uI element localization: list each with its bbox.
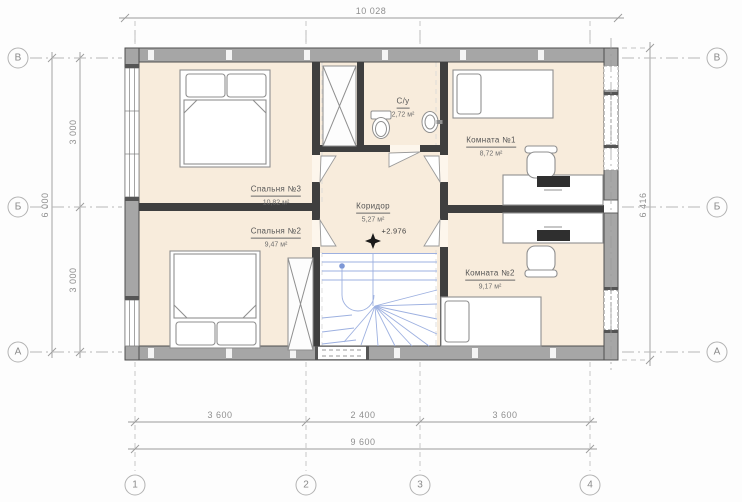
room-area: 8,72 м²: [466, 151, 516, 160]
room-name: С/у: [397, 97, 410, 109]
room-area: 9,17 м²: [465, 284, 515, 293]
dim-left-segment-2: 3 000: [68, 267, 78, 292]
axis-circle-a-left: А: [8, 342, 29, 363]
bed-room2: [441, 297, 541, 346]
axis-circle-b-right: Б: [707, 197, 728, 218]
axis-circle-v-right: В: [707, 48, 728, 69]
window-bottom: [318, 347, 366, 359]
dim-top-overall: 10 028: [356, 6, 387, 16]
axis-circle-2: 2: [296, 475, 317, 496]
room-name: Комната №1: [466, 136, 516, 148]
axis-circle-a-right: А: [707, 342, 728, 363]
room-name: Спальня №3: [251, 185, 301, 197]
room-name: Коридор: [356, 202, 390, 214]
axis-circle-1: 1: [125, 475, 146, 496]
wardrobe-hall: [323, 66, 356, 146]
room-area: 2,72 м²: [392, 112, 415, 121]
axis-circle-3: 3: [410, 475, 431, 496]
dim-bottom-segment-3: 3 600: [492, 410, 517, 420]
bed-bedroom2: [170, 251, 260, 348]
dim-left-segment-1: 3 000: [68, 119, 78, 144]
room-label-room1: Комната №1 8,72 м²: [466, 129, 516, 160]
room-area: 10,82 м²: [251, 200, 301, 209]
toilet: [371, 111, 391, 139]
room-name: Комната №2: [465, 269, 515, 281]
axis-circle-4: 4: [580, 475, 601, 496]
room-label-bedroom3: Спальня №3 10,82 м²: [251, 178, 301, 209]
room-label-bedroom2: Спальня №2 9,47 м²: [251, 220, 301, 251]
axis-circle-v-left: В: [8, 48, 29, 69]
floor-plan-drawing: 10 028 6 000 3 000 3 000 6 416 3 600 2 4…: [0, 0, 742, 502]
bed-room1: [453, 70, 553, 118]
room-label-corridor: Коридор 5,27 м²: [356, 195, 390, 226]
room-label-room2: Комната №2 9,17 м²: [465, 262, 515, 293]
floor-plan-canvas: [0, 0, 742, 502]
dim-bottom-overall: 9 600: [350, 437, 375, 447]
room-area: 9,47 м²: [251, 242, 301, 251]
elevation-mark: +2.976: [382, 227, 407, 236]
dim-left-overall: 6 000: [40, 192, 50, 217]
room-name: Спальня №2: [251, 227, 301, 239]
dim-bottom-segment-2: 2 400: [350, 410, 375, 420]
room-label-bathroom: С/у 2,72 м²: [392, 90, 415, 121]
wardrobe-bedroom2: [288, 258, 313, 350]
dim-bottom-segment-1: 3 600: [207, 410, 232, 420]
axis-circle-b-left: Б: [8, 197, 29, 218]
room-area: 5,27 м²: [356, 217, 390, 226]
window-left-1: [125, 68, 139, 197]
bed-bedroom3: [180, 70, 270, 167]
window-left-2: [125, 300, 139, 346]
dim-right-overall: 6 416: [638, 192, 648, 217]
